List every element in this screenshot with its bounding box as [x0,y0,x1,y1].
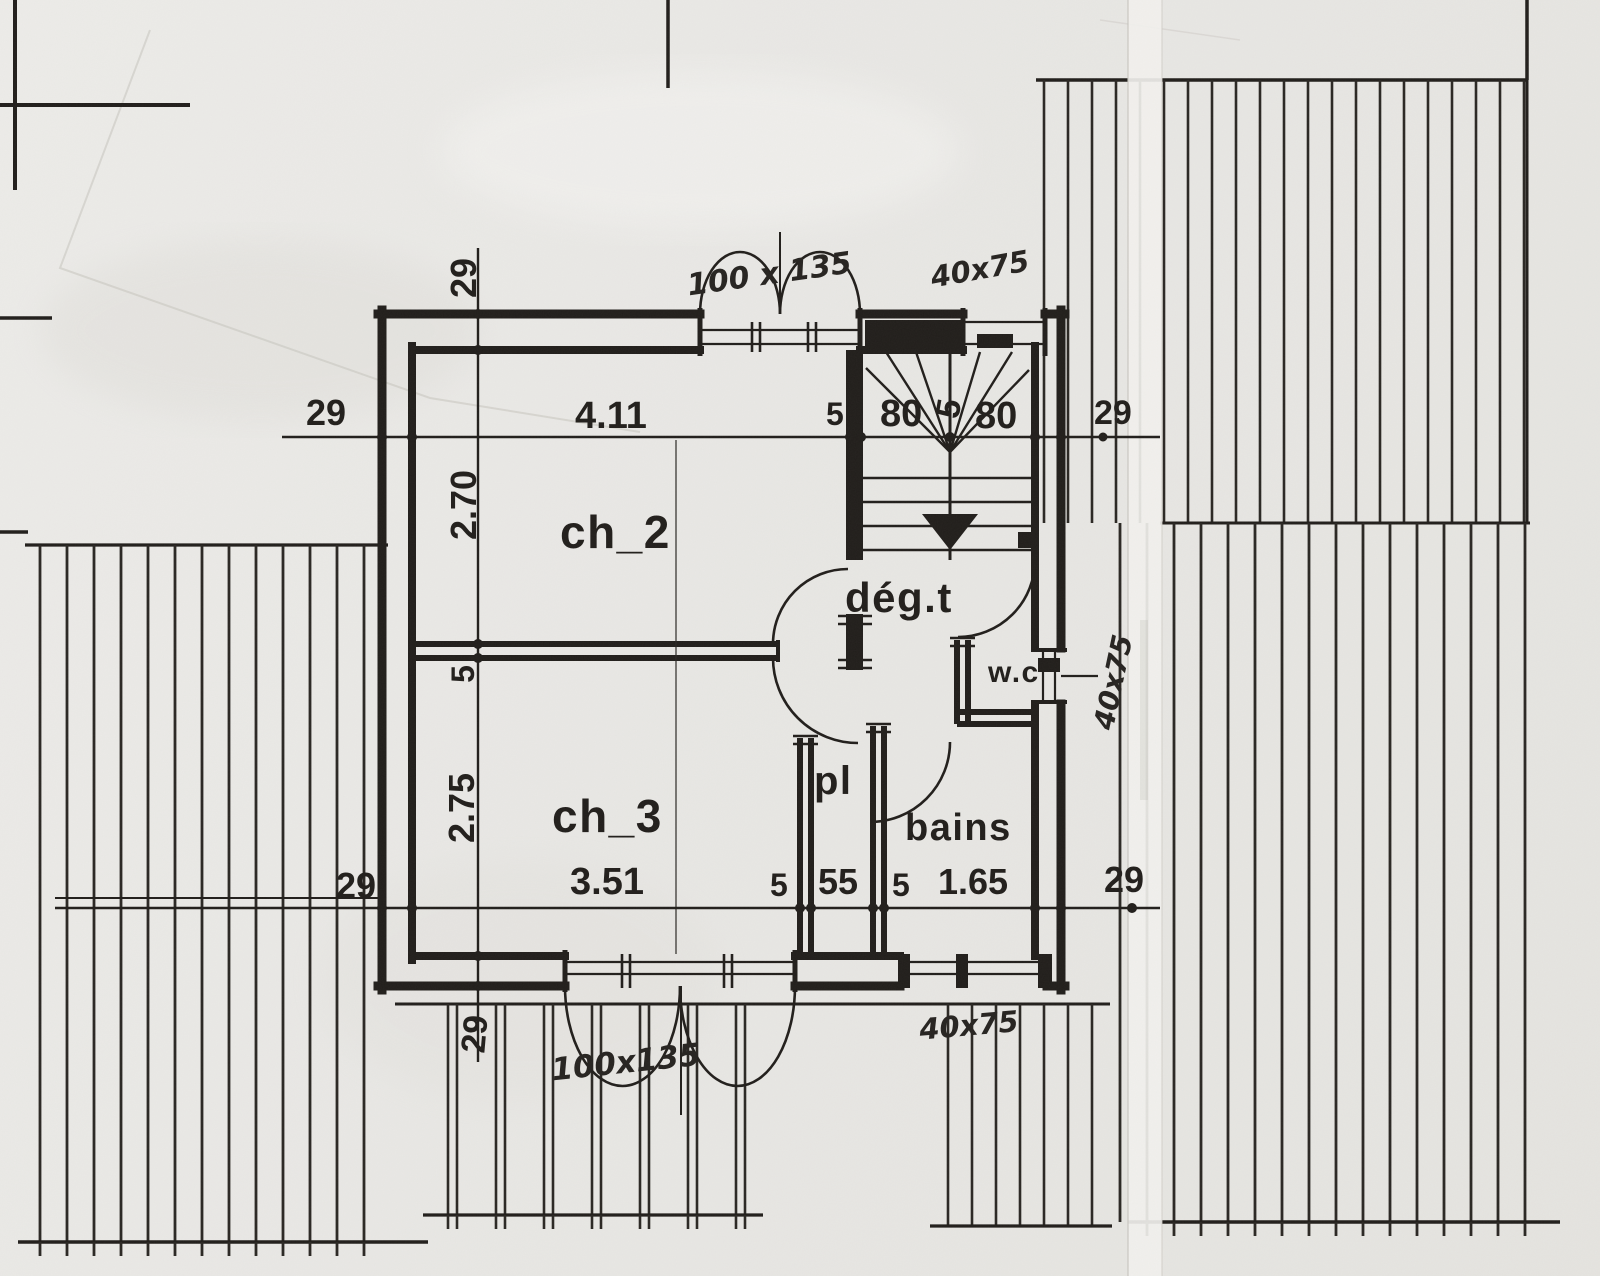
scanned-floor-plan: 29 4.11 5 80 5 80 29 29 2.70 5 2.75 29 2… [0,0,1600,1276]
paper-grain [0,0,1600,1276]
floor-plan-svg: 29 4.11 5 80 5 80 29 29 2.70 5 2.75 29 2… [0,0,1600,1276]
